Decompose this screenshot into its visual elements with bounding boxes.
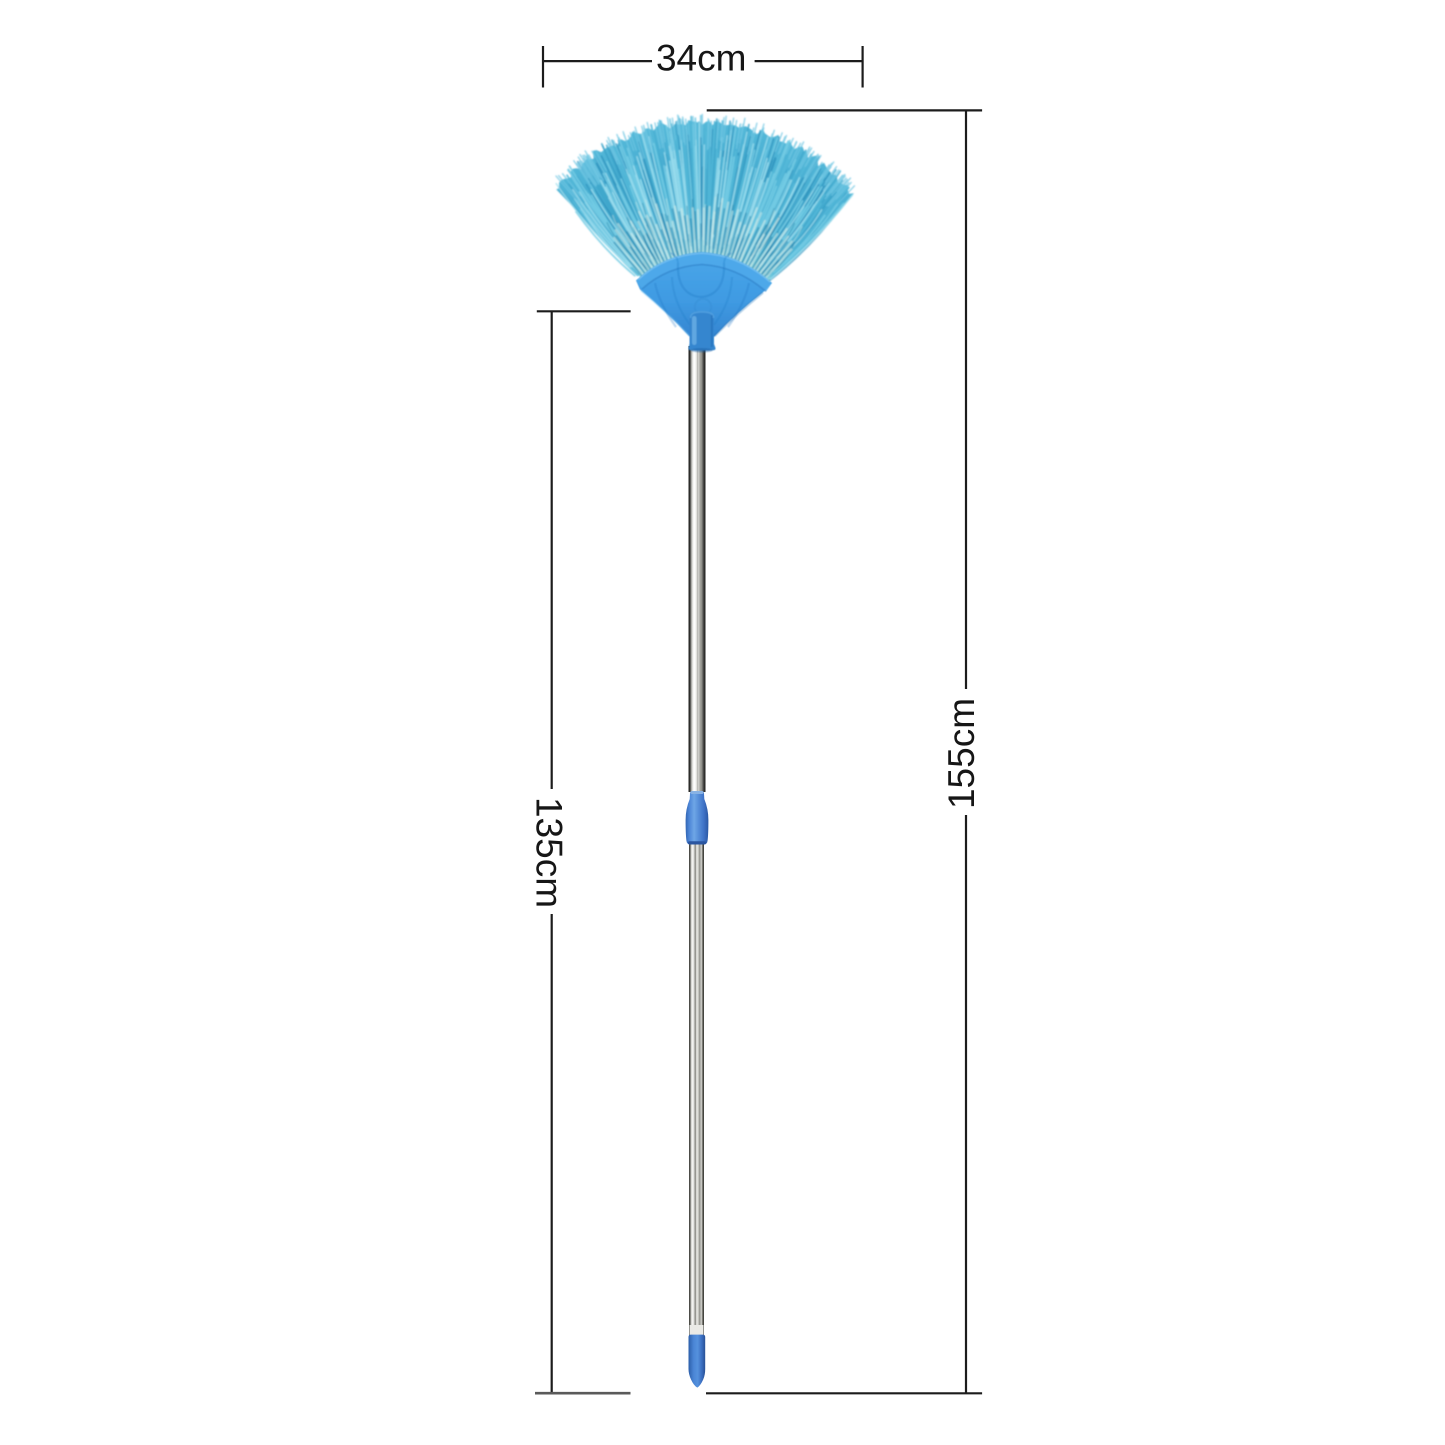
svg-text:155cm: 155cm	[941, 698, 982, 809]
svg-text:34cm: 34cm	[656, 38, 746, 79]
svg-text:135cm: 135cm	[529, 797, 570, 908]
